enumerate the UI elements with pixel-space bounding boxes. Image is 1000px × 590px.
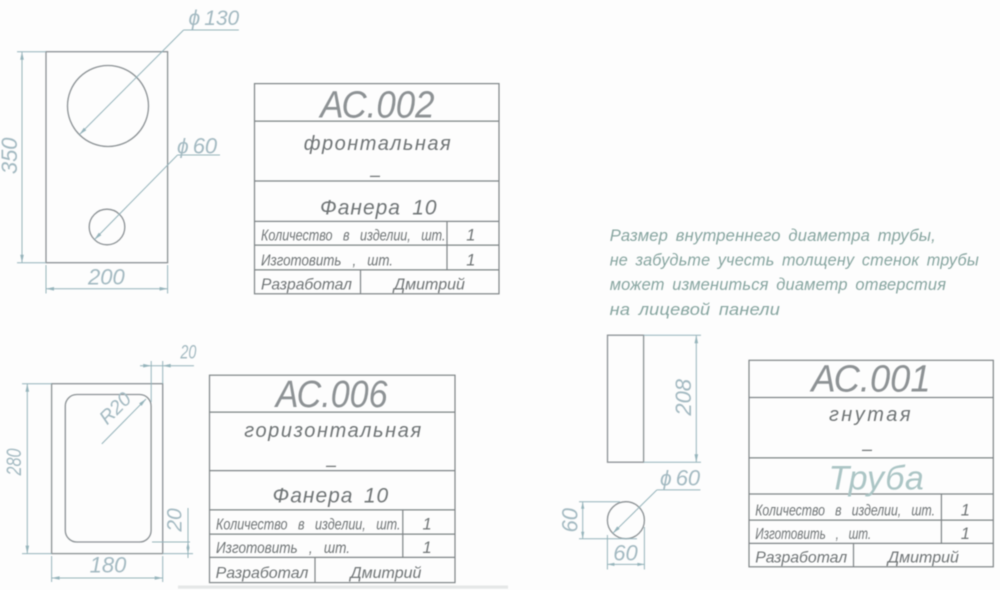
svg-text:Изготовить , шт.: Изготовить , шт. (261, 252, 393, 269)
svg-text:горизонтальная: горизонтальная (244, 420, 423, 442)
svg-text:Изготовить , шт.: Изготовить , шт. (216, 540, 350, 557)
svg-text:Разработал: Разработал (261, 276, 352, 293)
svg-text:1: 1 (423, 516, 432, 534)
svg-text:–: – (861, 439, 873, 459)
svg-text:1: 1 (423, 539, 432, 557)
svg-text:180: 180 (90, 553, 127, 578)
svg-text:Количество в изделии, шт: Количество в изделии, шт. (216, 517, 401, 534)
svg-text:Количество в изделии, шт: Количество в изделии, шт. (261, 228, 446, 245)
svg-text:Дмитрий: Дмитрий (348, 565, 421, 582)
svg-text:60: 60 (613, 541, 638, 566)
svg-text:10: 10 (412, 196, 437, 219)
svg-text:1: 1 (961, 525, 970, 543)
svg-text:ϕ60: ϕ60 (660, 466, 701, 491)
svg-text:АС.001: АС.001 (809, 359, 930, 401)
svg-text:208: 208 (671, 378, 696, 416)
svg-text:Дмитрий: Дмитрий (392, 276, 465, 293)
svg-text:350: 350 (0, 137, 22, 174)
svg-text:ϕ60: ϕ60 (177, 134, 218, 159)
svg-text:Разработал: Разработал (216, 565, 309, 582)
svg-text:20: 20 (180, 342, 197, 363)
svg-text:Количество в изделии, шт: Количество в изделии, шт. (755, 503, 935, 520)
svg-text:гнутая: гнутая (829, 404, 913, 426)
svg-text:10: 10 (364, 485, 389, 508)
svg-text:Изготовить , шт.: Изготовить , шт. (755, 526, 871, 543)
svg-text:Фанера: Фанера (273, 485, 354, 508)
svg-text:фронтальная: фронтальная (304, 133, 452, 155)
svg-text:60: 60 (557, 507, 582, 532)
svg-text:280: 280 (3, 448, 26, 476)
svg-text:АС.002: АС.002 (318, 85, 434, 127)
svg-text:Фанера: Фанера (320, 196, 401, 219)
svg-text:1: 1 (466, 251, 475, 269)
svg-text:может измениться диаметр от: может измениться диаметр отверстия (610, 275, 947, 294)
svg-text:Дмитрий: Дмитрий (886, 549, 959, 566)
svg-text:Размер внутреннего диаметра: Размер внутреннего диаметра трубы, (610, 226, 936, 245)
svg-text:Труба: Труба (829, 460, 925, 498)
svg-text:1: 1 (466, 227, 475, 245)
svg-text:АС.006: АС.006 (274, 374, 388, 416)
svg-text:ϕ130: ϕ130 (189, 7, 240, 30)
svg-text:не забудьте учесть толщену: не забудьте учесть толщену стенок трубы (610, 251, 980, 270)
svg-text:Разработал: Разработал (755, 549, 847, 566)
svg-text:на лицевой панели: на лицевой панели (610, 300, 781, 319)
svg-text:1: 1 (961, 502, 970, 520)
svg-text:20: 20 (164, 508, 187, 533)
svg-text:–: – (325, 455, 337, 475)
svg-text:200: 200 (87, 265, 125, 290)
svg-text:–: – (369, 165, 381, 185)
